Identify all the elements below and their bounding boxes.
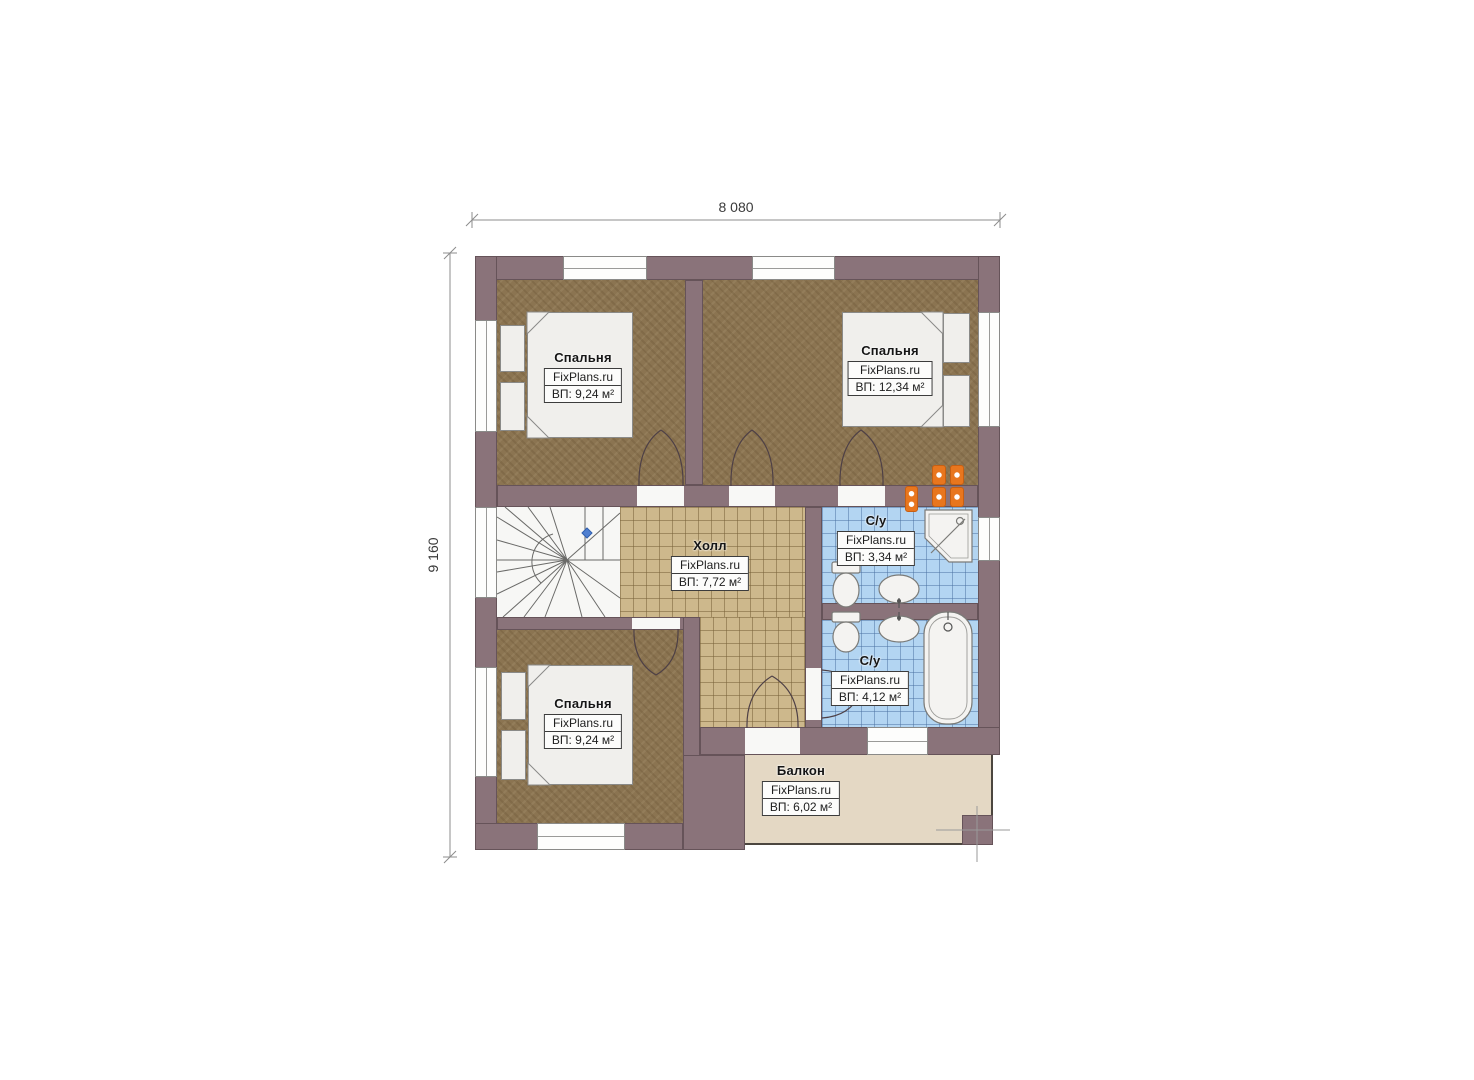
- room-name: Холл: [671, 538, 749, 553]
- socket-icon-4: [950, 465, 964, 485]
- staircase-floor: [497, 507, 620, 617]
- nightstand-bl-2: [501, 730, 526, 780]
- room-area: ВП: 3,34 м²: [838, 548, 914, 565]
- room-name: С/у: [831, 653, 909, 668]
- watermark-box: FixPlans.ru ВП: 6,02 м²: [762, 781, 840, 816]
- window-bottom-bedroom-bl: [537, 823, 625, 850]
- window-left-bedroom-tl: [475, 320, 497, 432]
- nightstand-tl-2: [500, 382, 525, 431]
- door-opening-bathroom-upper: [838, 486, 885, 506]
- socket-icon-5: [950, 487, 964, 507]
- nightstand-bl-1: [501, 672, 526, 720]
- socket-icon-2: [932, 465, 946, 485]
- watermark-text: FixPlans.ru: [545, 369, 621, 385]
- window-top-bedroom-right: [752, 256, 835, 280]
- socket-icon-1: [905, 486, 918, 512]
- room-area: ВП: 4,12 м²: [832, 688, 908, 705]
- window-left-bedroom-bl: [475, 667, 497, 777]
- room-name: Спальня: [544, 350, 622, 365]
- socket-icon-3: [932, 487, 946, 507]
- balcony-corner-column: [962, 815, 993, 845]
- floor-plan-page: 8 080 9 160 Спальня FixPlans.ru ВП: 9,24…: [0, 0, 1474, 1080]
- door-opening-balcony: [745, 728, 800, 754]
- bedroom-bottom-left-label: Спальня FixPlans.ru ВП: 9,24 м²: [544, 696, 622, 749]
- watermark-text: FixPlans.ru: [545, 715, 621, 731]
- window-left-staircase: [475, 507, 497, 598]
- balcony-label: Балкон FixPlans.ru ВП: 6,02 м²: [762, 763, 840, 816]
- window-top-bedroom-left: [563, 256, 647, 280]
- wall-bedrooms-divider: [685, 280, 703, 485]
- wall-bathrooms-divider: [822, 603, 978, 620]
- dimension-width-label: 8 080: [718, 199, 753, 215]
- room-area: ВП: 7,72 м²: [672, 573, 748, 590]
- watermark-box: FixPlans.ru ВП: 3,34 м²: [837, 531, 915, 566]
- bathroom-upper-label: С/у FixPlans.ru ВП: 3,34 м²: [837, 513, 915, 566]
- hall-floor-lower: [700, 617, 805, 727]
- room-name: Балкон: [762, 763, 840, 778]
- door-opening-bedroom-tr: [729, 486, 775, 506]
- watermark-text: FixPlans.ru: [849, 362, 932, 378]
- room-area: ВП: 6,02 м²: [763, 798, 839, 815]
- room-name: Спальня: [848, 343, 933, 358]
- watermark-text: FixPlans.ru: [672, 557, 748, 573]
- watermark-box: FixPlans.ru ВП: 12,34 м²: [848, 361, 933, 396]
- nightstand-tl-1: [500, 325, 525, 372]
- room-area: ВП: 9,24 м²: [545, 385, 621, 402]
- door-opening-bedroom-bl: [632, 618, 680, 629]
- bedroom-top-left-label: Спальня FixPlans.ru ВП: 9,24 м²: [544, 350, 622, 403]
- watermark-box: FixPlans.ru ВП: 9,24 м²: [544, 368, 622, 403]
- wall-block-balcony-left: [683, 755, 745, 850]
- room-name: Спальня: [544, 696, 622, 711]
- dimension-height-label: 9 160: [425, 537, 441, 572]
- watermark-text: FixPlans.ru: [832, 672, 908, 688]
- window-right-bathroom: [978, 517, 1000, 561]
- watermark-box: FixPlans.ru ВП: 4,12 м²: [831, 671, 909, 706]
- bedroom-top-right-label: Спальня FixPlans.ru ВП: 12,34 м²: [848, 343, 933, 396]
- room-area: ВП: 9,24 м²: [545, 731, 621, 748]
- room-area: ВП: 12,34 м²: [849, 378, 932, 395]
- nightstand-tr-2: [943, 375, 970, 427]
- watermark-box: FixPlans.ru ВП: 7,72 м²: [671, 556, 749, 591]
- room-name: С/у: [837, 513, 915, 528]
- window-bathroom-balcony: [867, 727, 928, 755]
- wall-top-exterior: [475, 256, 1000, 280]
- watermark-text: FixPlans.ru: [838, 532, 914, 548]
- window-right-bedroom-tr: [978, 312, 1000, 427]
- watermark-text: FixPlans.ru: [763, 782, 839, 798]
- nightstand-tr-1: [943, 313, 970, 363]
- bathroom-lower-label: С/у FixPlans.ru ВП: 4,12 м²: [831, 653, 909, 706]
- door-opening-bathroom-lower: [806, 668, 821, 720]
- door-opening-bedroom-tl: [637, 486, 684, 506]
- hall-label: Холл FixPlans.ru ВП: 7,72 м²: [671, 538, 749, 591]
- watermark-box: FixPlans.ru ВП: 9,24 м²: [544, 714, 622, 749]
